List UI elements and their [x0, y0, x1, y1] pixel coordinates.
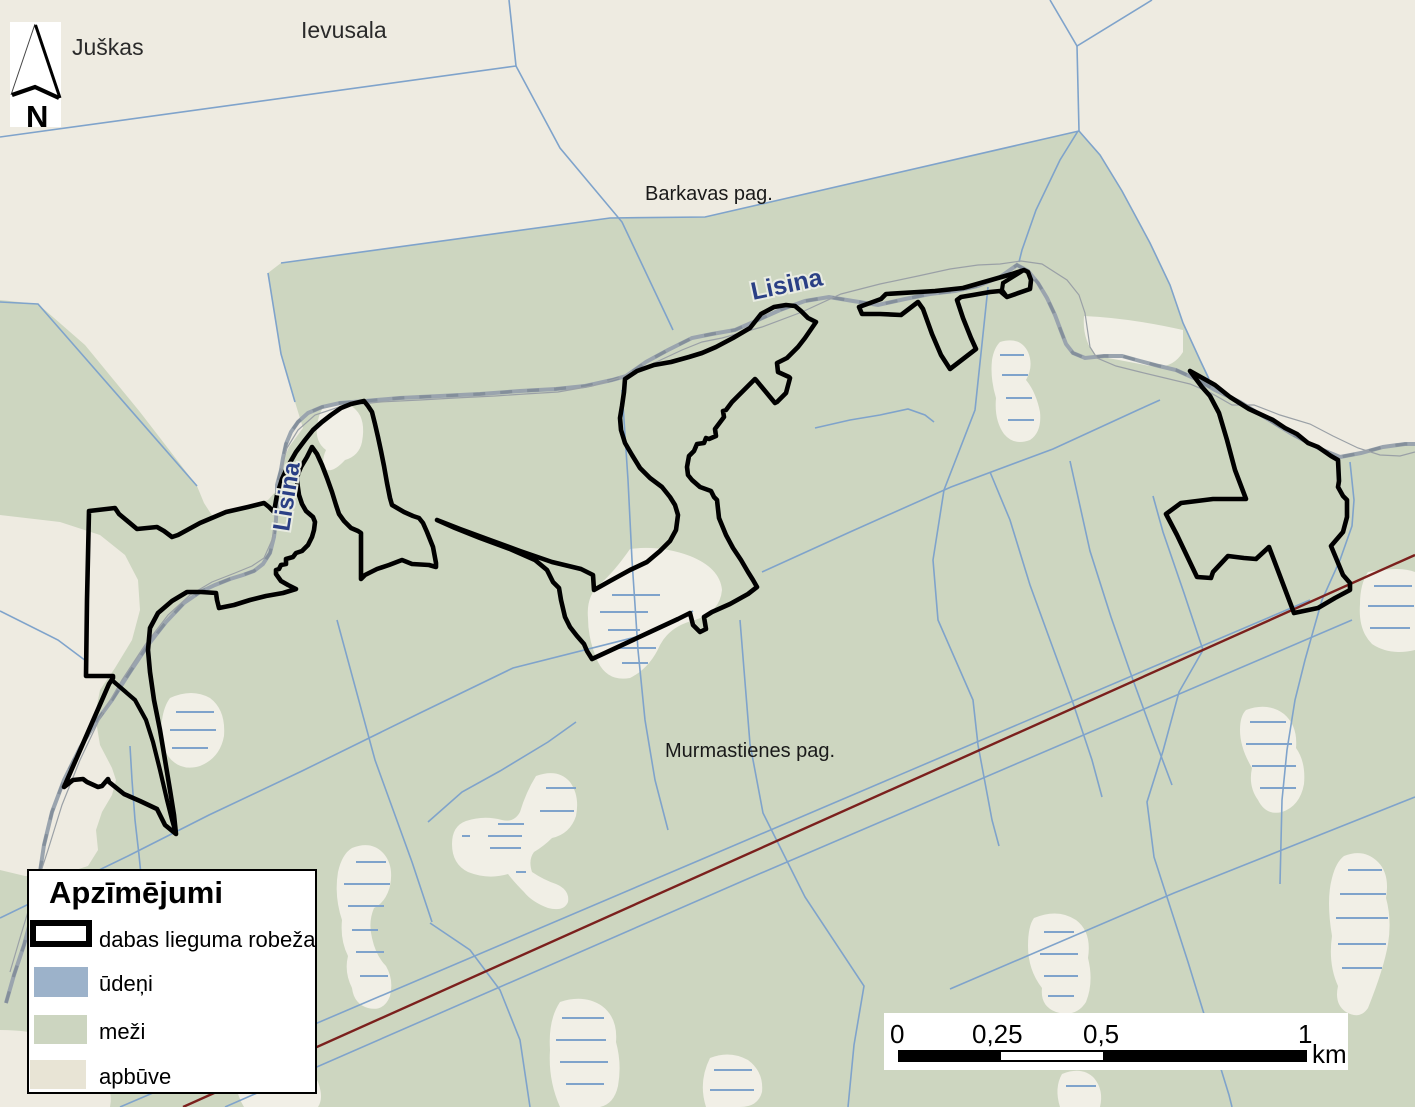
svg-text:Barkavas pag.: Barkavas pag.	[645, 183, 773, 205]
svg-text:km: km	[1312, 1039, 1347, 1069]
svg-text:0,5: 0,5	[1083, 1019, 1119, 1049]
svg-text:dabas lieguma robeža: dabas lieguma robeža	[99, 927, 316, 952]
svg-text:Ievusala: Ievusala	[301, 17, 387, 43]
svg-text:apbūve: apbūve	[99, 1064, 171, 1089]
svg-text:Apzīmējumi: Apzīmējumi	[49, 875, 223, 910]
svg-text:ūdeņi: ūdeņi	[99, 971, 153, 996]
svg-text:meži: meži	[99, 1019, 145, 1044]
svg-text:1: 1	[1298, 1019, 1312, 1049]
svg-text:Juškas: Juškas	[72, 34, 144, 60]
svg-text:Murmastienes pag.: Murmastienes pag.	[665, 740, 835, 762]
svg-text:0: 0	[890, 1019, 904, 1049]
svg-text:0,25: 0,25	[972, 1019, 1023, 1049]
svg-text:N: N	[26, 99, 48, 134]
